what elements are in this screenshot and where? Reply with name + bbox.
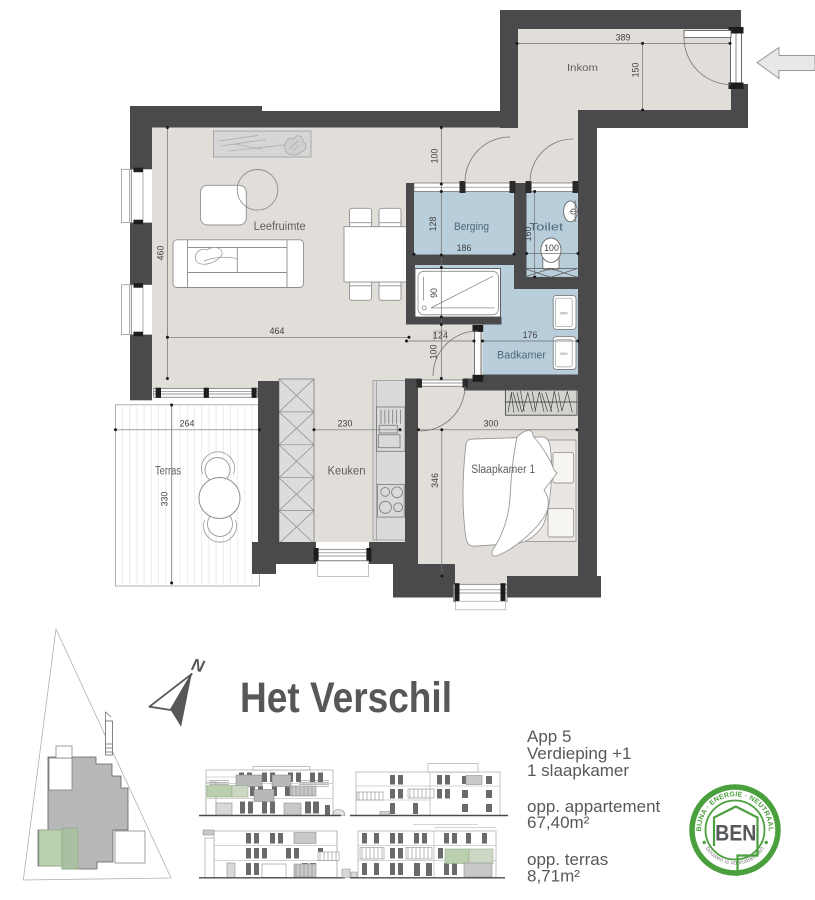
svg-text:176: 176	[523, 330, 538, 340]
svg-text:300: 300	[484, 419, 499, 429]
svg-text:389: 389	[616, 32, 631, 42]
svg-text:128: 128	[428, 217, 438, 232]
svg-text:100: 100	[544, 243, 559, 253]
svg-text:100: 100	[428, 345, 438, 360]
svg-text:8,71m²: 8,71m²	[527, 867, 580, 886]
svg-text:346: 346	[430, 473, 440, 488]
svg-text:Ø40: Ø40	[560, 311, 568, 316]
svg-text:330: 330	[159, 492, 169, 507]
svg-text:Keuken: Keuken	[328, 466, 366, 478]
svg-text:Inkom: Inkom	[567, 63, 598, 74]
svg-text:N: N	[190, 655, 207, 677]
svg-text:264: 264	[180, 419, 195, 429]
svg-text:BEN: BEN	[715, 821, 756, 846]
svg-text:230: 230	[338, 419, 353, 429]
svg-text:Leefruimte: Leefruimte	[254, 221, 306, 233]
svg-text:67,40m²: 67,40m²	[527, 813, 590, 832]
svg-text:Toilet: Toilet	[529, 221, 563, 233]
svg-text:150: 150	[631, 63, 641, 78]
svg-text:Berging: Berging	[454, 221, 489, 233]
svg-text:1 slaapkamer: 1 slaapkamer	[527, 761, 629, 780]
svg-text:Het Verschil: Het Verschil	[240, 674, 452, 722]
svg-text:460: 460	[155, 246, 165, 261]
svg-text:186: 186	[457, 243, 472, 253]
svg-text:90: 90	[429, 288, 439, 298]
svg-text:464: 464	[270, 326, 285, 336]
svg-text:Slaapkamer 1: Slaapkamer 1	[471, 464, 535, 476]
svg-text:Ø40: Ø40	[560, 351, 568, 356]
svg-text:Terras: Terras	[155, 466, 181, 478]
svg-text:Badkamer: Badkamer	[497, 349, 546, 361]
svg-text:100: 100	[429, 149, 439, 164]
svg-text:124: 124	[433, 331, 448, 341]
